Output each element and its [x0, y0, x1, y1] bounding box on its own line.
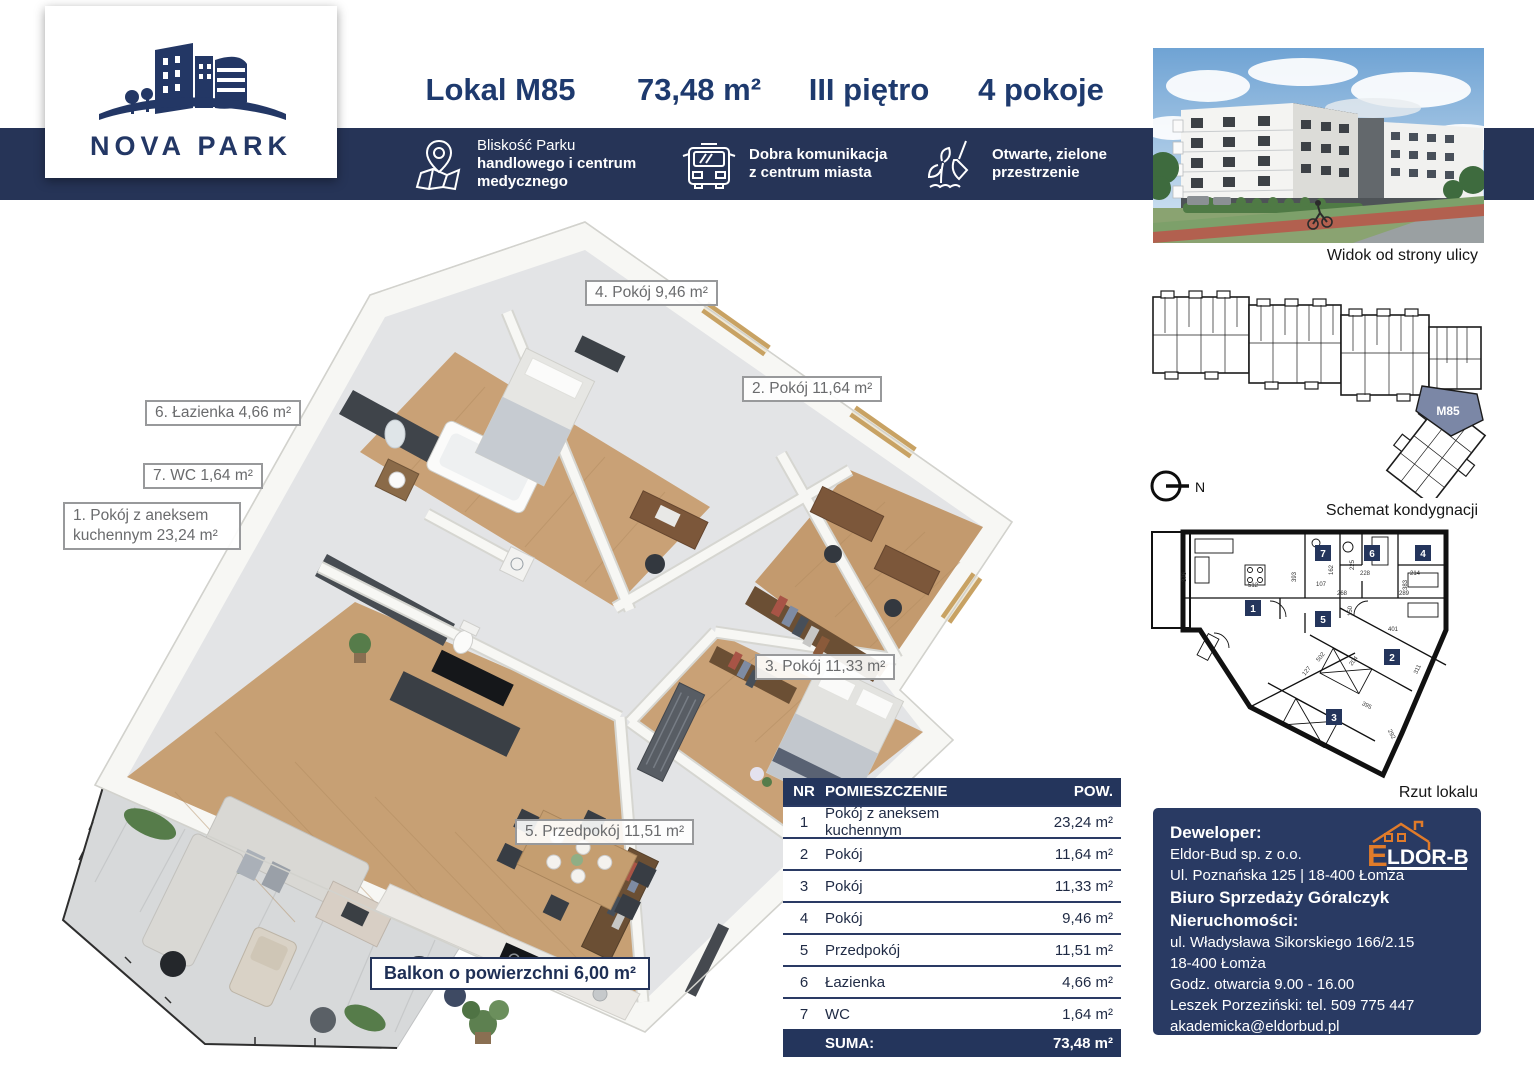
table-row: 2Pokój11,64 m² [783, 837, 1121, 869]
flyer-page: NOVA PARK Lokal M85 73,48 m² III piętro … [0, 0, 1534, 1084]
table-row: 7WC1,64 m² [783, 997, 1121, 1029]
table-row: 4Pokój9,46 m² [783, 901, 1121, 933]
table-header: NR POMIESZCZENIE POW. [783, 778, 1121, 805]
feature-transport: Dobra komunikacja z centrum miasta [681, 128, 887, 200]
label-hallway: 5. Przedpokój 11,51 m² [515, 819, 694, 845]
floor-schematic: M85 [1145, 283, 1534, 498]
photo-caption: Widok od strony ulicy [1153, 247, 1478, 265]
svg-text:225: 225 [1350, 559, 1356, 570]
bathroom-fixtures [375, 419, 545, 657]
label-room1: 1. Pokój z aneksem kuchennym 23,24 m² [63, 502, 241, 550]
unit-area: 73,48 m² [624, 72, 774, 108]
table-row: 5Przedpokój11,51 m² [783, 933, 1121, 965]
label-wc: 7. WC 1,64 m² [143, 463, 263, 489]
eldorbud-logo: E LDOR-BUD [1365, 818, 1469, 874]
novapark-logo-card: NOVA PARK [45, 6, 337, 178]
contact-phone: Leszek Porzeziński: tel. 509 775 447 [1170, 995, 1481, 1016]
contact-email: akademicka@eldorbud.pl [1170, 1016, 1481, 1037]
sales-office-address2: 18-400 Łomża [1170, 953, 1481, 974]
plant-trowel-icon [926, 137, 980, 191]
website-link: www.novapark2.pl [1170, 1037, 1481, 1061]
unit-m85-label: M85 [1436, 404, 1460, 418]
label-room2: 2. Pokój 11,64 m² [742, 376, 882, 402]
table-row: 3Pokój11,33 m² [783, 869, 1121, 901]
feature-line: Dobra komunikacja [749, 146, 887, 164]
svg-text:383: 383 [1403, 579, 1409, 590]
svg-text:150: 150 [1348, 605, 1354, 616]
svg-text:3: 3 [1331, 713, 1337, 724]
balcony [63, 787, 460, 1048]
label-room3: 3. Pokój 11,33 m² [755, 654, 895, 680]
feature-green: Otwarte, zielone przestrzenie [926, 128, 1107, 200]
bus-icon [681, 138, 737, 190]
svg-text:512: 512 [1248, 583, 1259, 589]
unit-technical-plan: 376 512 393 107 162 225 228 214 383 268 … [1150, 523, 1534, 781]
feature-line: medycznego [477, 173, 636, 191]
kitchen-counter [375, 884, 640, 1020]
svg-text:LDOR-BUD: LDOR-BUD [1387, 846, 1469, 869]
table-sum-row: SUMA: 73,48 m² [783, 1029, 1121, 1057]
unit-floor: III piętro [798, 72, 940, 108]
feature-line: Otwarte, zielone [992, 146, 1107, 164]
svg-text:289: 289 [1399, 591, 1410, 597]
svg-text:268: 268 [1337, 591, 1348, 597]
svg-text:7: 7 [1320, 549, 1326, 560]
label-room4: 4. Pokój 9,46 m² [585, 280, 718, 306]
sales-office-address1: ul. Władysława Sikorskiego 166/2.15 [1170, 932, 1481, 953]
developer-panel: E LDOR-BUD Deweloper: Eldor-Bud sp. z o.… [1153, 808, 1481, 1035]
unit-plan-caption: Rzut lokalu [1153, 784, 1478, 802]
label-balcony: Balkon o powierzchni 6,00 m² [370, 957, 650, 990]
svg-text:228: 228 [1360, 571, 1371, 577]
svg-text:6: 6 [1369, 549, 1375, 560]
svg-text:393: 393 [1292, 571, 1298, 582]
north-label: N [1195, 479, 1205, 495]
svg-text:214: 214 [1410, 571, 1421, 577]
feature-park: Bliskość Parku handlowego i centrum medy… [413, 128, 636, 200]
table-row: 1Pokój z aneksem kuchennym23,24 m² [783, 805, 1121, 837]
rooms-table: NR POMIESZCZENIE POW. 1Pokój z aneksem k… [783, 778, 1121, 1057]
building-photo [1153, 48, 1484, 243]
svg-text:2: 2 [1389, 653, 1395, 664]
dining-set [485, 783, 667, 949]
table-row: 6Łazienka4,66 m² [783, 965, 1121, 997]
svg-text:E: E [1367, 838, 1388, 873]
room4-furniture [475, 335, 708, 574]
room2-furniture [745, 487, 940, 682]
novapark-logo-text: NOVA PARK [90, 131, 292, 161]
opening-hours: Godz. otwarcia 9.00 - 16.00 [1170, 974, 1481, 995]
feature-line: Bliskość Parku [477, 137, 636, 155]
label-bathroom: 6. Łazienka 4,66 m² [145, 400, 301, 426]
feature-line: z centrum miasta [749, 164, 887, 182]
svg-text:376: 376 [1182, 571, 1188, 582]
feature-line: przestrzenie [992, 164, 1107, 182]
sales-office-heading: Biuro Sprzedaży Góralczyk Nieruchomości: [1170, 886, 1481, 932]
schematic-caption: Schemat kondygnacji [1153, 502, 1478, 520]
unit-title: Lokal M85 [418, 72, 583, 108]
svg-text:401: 401 [1388, 627, 1399, 633]
svg-text:162: 162 [1329, 564, 1335, 575]
north-indicator: N [1149, 468, 1219, 506]
unit-rooms: 4 pokoje [970, 72, 1112, 108]
feature-line: handlowego i centrum [477, 155, 636, 173]
map-pin-icon [413, 137, 465, 191]
svg-text:1: 1 [1250, 604, 1256, 615]
svg-text:107: 107 [1316, 582, 1327, 588]
novapark-logo: NOVA PARK [51, 12, 331, 172]
svg-text:5: 5 [1320, 615, 1326, 626]
svg-text:4: 4 [1420, 549, 1426, 560]
